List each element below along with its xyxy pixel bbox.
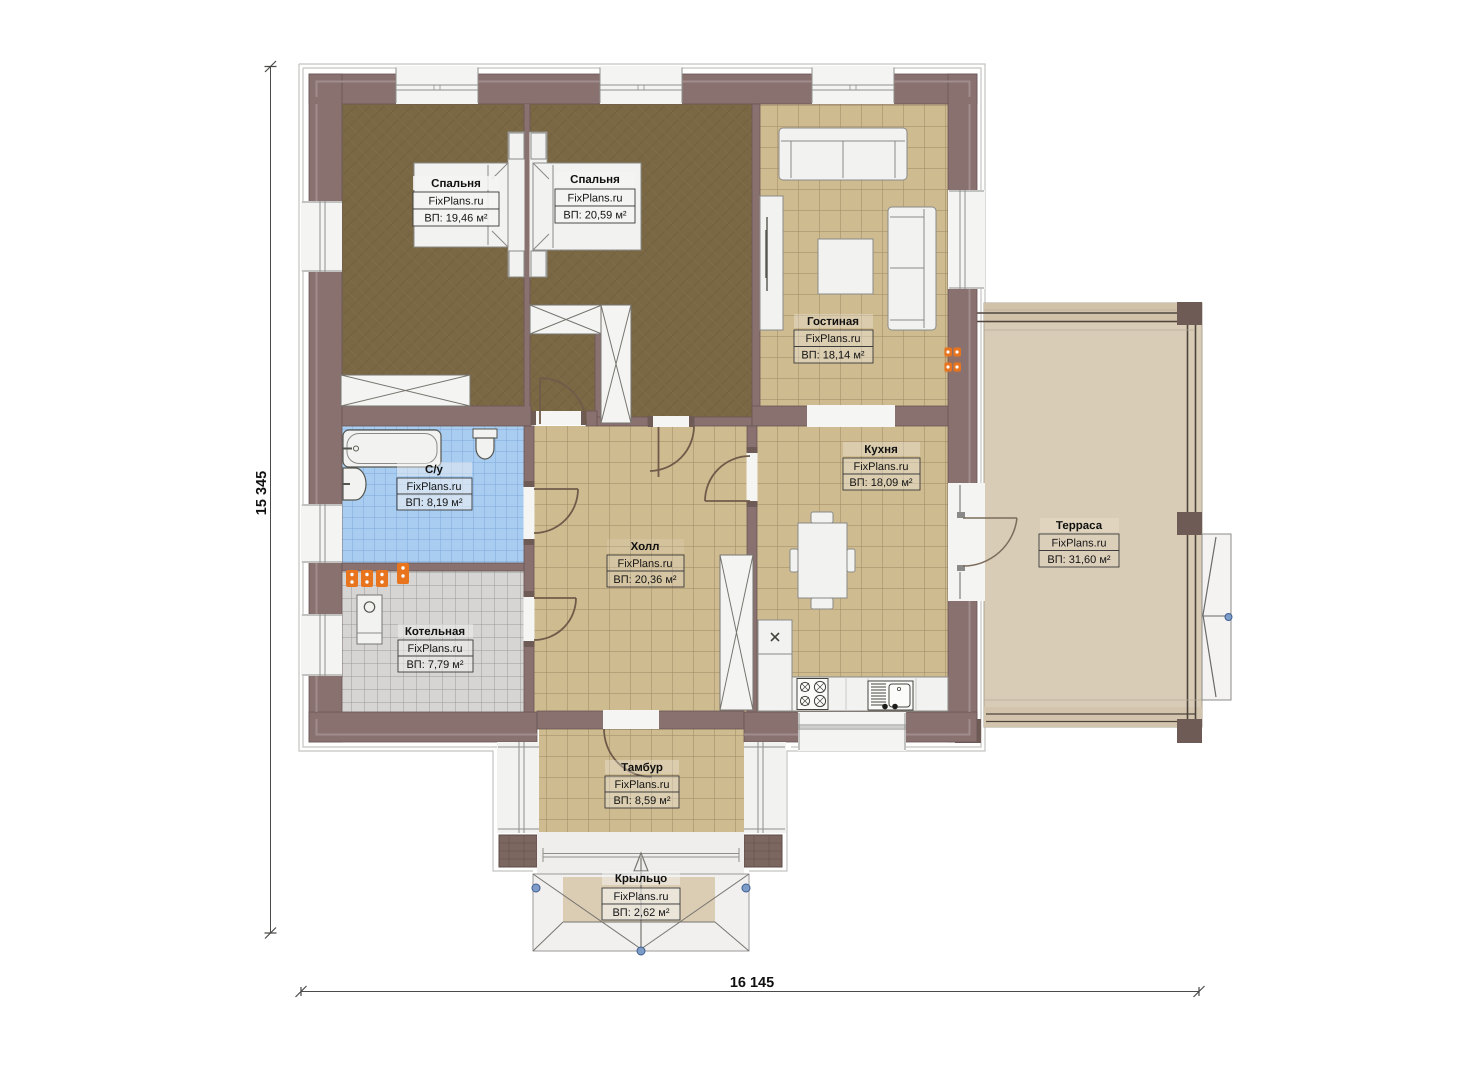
svg-text:FixPlans.ru: FixPlans.ru (617, 558, 672, 570)
svg-text:FixPlans.ru: FixPlans.ru (613, 891, 668, 903)
svg-text:Спальня: Спальня (570, 174, 620, 186)
svg-text:Спальня: Спальня (431, 178, 481, 190)
svg-text:Гостиная: Гостиная (807, 316, 859, 328)
svg-text:FixPlans.ru: FixPlans.ru (567, 193, 622, 205)
svg-text:ВП: 31,60 м²: ВП: 31,60 м² (1047, 554, 1111, 566)
svg-text:ВП: 2,62 м²: ВП: 2,62 м² (612, 907, 669, 919)
svg-text:15 345: 15 345 (254, 471, 270, 515)
svg-text:Кухня: Кухня (864, 444, 898, 456)
svg-text:ВП: 8,59 м²: ВП: 8,59 м² (613, 795, 670, 807)
svg-text:ВП: 8,19 м²: ВП: 8,19 м² (405, 497, 462, 509)
svg-text:FixPlans.ru: FixPlans.ru (853, 461, 908, 473)
svg-text:ВП: 20,36 м²: ВП: 20,36 м² (613, 574, 677, 586)
svg-text:16 145: 16 145 (730, 975, 774, 991)
svg-text:ВП: 18,14 м²: ВП: 18,14 м² (801, 350, 865, 362)
svg-text:Котельная: Котельная (405, 626, 465, 638)
svg-text:Холл: Холл (631, 541, 660, 553)
svg-text:FixPlans.ru: FixPlans.ru (805, 333, 860, 345)
svg-text:ВП: 20,59 м²: ВП: 20,59 м² (563, 210, 627, 222)
svg-text:FixPlans.ru: FixPlans.ru (406, 481, 461, 493)
svg-text:FixPlans.ru: FixPlans.ru (428, 196, 483, 208)
svg-text:С/у: С/у (425, 464, 444, 476)
svg-text:ВП: 7,79 м²: ВП: 7,79 м² (406, 659, 463, 671)
svg-text:ВП: 19,46 м²: ВП: 19,46 м² (424, 213, 488, 225)
svg-text:Терраса: Терраса (1056, 520, 1103, 532)
svg-text:Тамбур: Тамбур (621, 762, 663, 774)
svg-text:FixPlans.ru: FixPlans.ru (407, 643, 462, 655)
svg-text:ВП: 18,09 м²: ВП: 18,09 м² (849, 477, 913, 489)
svg-text:FixPlans.ru: FixPlans.ru (1051, 538, 1106, 550)
svg-text:FixPlans.ru: FixPlans.ru (614, 779, 669, 791)
svg-text:Крыльцо: Крыльцо (615, 873, 667, 885)
